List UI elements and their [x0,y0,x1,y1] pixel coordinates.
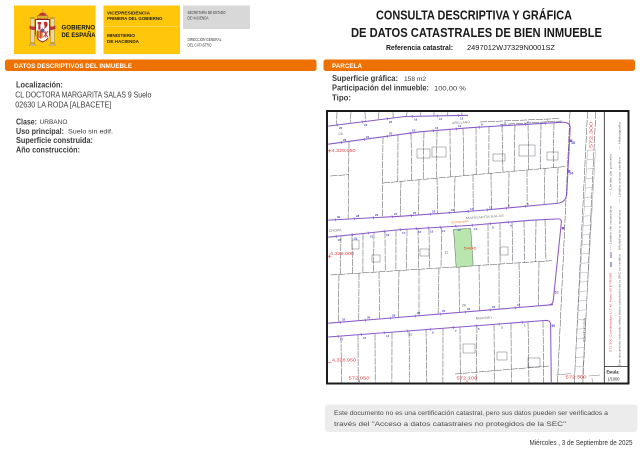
svg-text:25: 25 [338,238,342,242]
svg-text:20: 20 [339,126,343,130]
svg-text:4.328.950: 4.328.950 [332,358,357,363]
svg-text:Participación del inmueble:: Participación del inmueble: [332,84,429,93]
svg-text:28: 28 [392,313,396,317]
svg-text:— Hidrografía: — Hidrografía [617,122,621,150]
svg-text:Superficie gráfica:: Superficie gráfica: [332,74,398,83]
svg-text:14: 14 [439,117,443,121]
svg-text:50: 50 [552,324,556,328]
svg-text:17: 17 [340,338,344,342]
svg-text:Suelo sin edif.: Suelo sin edif. [68,129,113,136]
svg-text:572.100: 572.100 [457,376,479,381]
svg-text:24: 24 [366,135,370,139]
svg-text:4.329.000: 4.329.000 [330,251,355,256]
svg-text:MINISTERIO: MINISTERIO [107,33,135,39]
svg-text:32: 32 [342,317,346,321]
svg-text:30: 30 [337,215,341,219]
svg-text:2497012WJ7329N0001SZ: 2497012WJ7329N0001SZ [467,45,556,52]
svg-text:— Límite de manzana: — Límite de manzana [608,206,612,250]
svg-text:22: 22 [467,307,471,311]
svg-text:URBANO: URBANO [40,119,68,126]
svg-text:17: 17 [402,231,406,235]
svg-text:26: 26 [375,213,379,217]
svg-text:Miércoles , 3 de Septiembre de: Miércoles , 3 de Septiembre de 2025 [530,440,633,447]
svg-text:Referencia catastral:: Referencia catastral: [386,45,453,52]
svg-text:572.300 Coordenadas U.T.M. Hus: 572.300 Coordenadas U.T.M. Huso 30 ETRS8… [608,273,612,352]
svg-text:Año construcción:: Año construcción: [16,146,80,155]
svg-text:1/1000: 1/1000 [608,377,620,382]
svg-text:Tipo:: Tipo: [332,94,351,103]
svg-text:12: 12 [458,228,462,232]
svg-text:24: 24 [394,212,398,216]
svg-text:18: 18 [432,210,436,214]
svg-text:572.050: 572.050 [349,376,371,381]
svg-text:DEL CATASTRO: DEL CATASTRO [188,43,212,48]
svg-text:572.300: 572.300 [589,121,594,148]
svg-text:11: 11 [445,251,449,255]
svg-text:20: 20 [492,305,496,309]
svg-text:1/6: 1/6 [338,132,343,136]
svg-text:13: 13 [430,230,434,234]
svg-text:28: 28 [356,214,360,218]
svg-text:20: 20 [389,132,393,136]
svg-text:15: 15 [363,336,367,340]
svg-text:DE ESPAÑA: DE ESPAÑA [62,30,96,39]
svg-text:Dehesa: Dehesa [583,318,587,342]
svg-text:— Límite de parcela: — Límite de parcela [608,154,612,196]
svg-text:572.300: 572.300 [566,375,588,380]
svg-text:DE DATOS CATASTRALES DE BIEN I: DE DATOS CATASTRALES DE BIEN INMUEBLE [351,25,602,40]
svg-text:52: 52 [555,291,559,295]
svg-text:Superficie construida:: Superficie construida: [16,136,93,145]
svg-text:Este documento obtenido reflej: Este documento obtenido refleja datos ca… [617,254,621,366]
svg-text:Escala:: Escala: [607,370,620,375]
svg-text:través del "Acceso a datos cat: través del "Acceso a datos catastrales n… [334,421,566,428]
svg-text:23: 23 [354,236,358,240]
svg-text:16: 16 [435,126,439,130]
svg-text:24: 24 [442,309,446,313]
svg-text:Uso principal:: Uso principal: [16,127,64,136]
svg-text:14: 14 [470,207,474,211]
svg-text:28: 28 [343,138,347,142]
svg-text:12: 12 [489,205,493,209]
svg-text:5406: 5406 [464,246,478,251]
svg-text:DATOS DESCRIPTIVOS DEL INMUEBL: DATOS DESCRIPTIVOS DEL INMUEBLE [14,63,132,70]
svg-text:100,00 %: 100,00 % [434,86,466,93]
svg-text:Clase:: Clase: [16,117,37,126]
svg-text:13: 13 [386,334,390,338]
svg-text:PARCELA: PARCELA [332,63,362,70]
svg-text:02630 LA RODA [ALBACETE]: 02630 LA RODA [ALBACETE] [15,101,111,110]
svg-text:24: 24 [570,172,574,176]
svg-text:VICEPRESIDENCIA: VICEPRESIDENCIA [107,11,150,17]
svg-text:DIRECCIÓN GENERAL: DIRECCIÓN GENERAL [188,37,222,42]
svg-text:20: 20 [462,304,466,308]
svg-text:15: 15 [418,230,422,234]
svg-text:Este documento no es una certi: Este documento no es una certificación c… [334,410,608,417]
svg-text:16: 16 [414,118,418,122]
svg-text:21: 21 [370,235,374,239]
svg-text:158 m2: 158 m2 [404,76,427,83]
svg-text:30: 30 [367,315,371,319]
svg-text:— Límite zonas verdes: — Límite zonas verdes [617,156,621,203]
svg-text:11: 11 [409,332,412,336]
svg-text:DE HACIENDA: DE HACIENDA [107,39,139,45]
svg-text:26: 26 [417,311,421,315]
svg-text:4.329.050: 4.329.050 [332,148,357,153]
svg-text:19: 19 [386,233,390,237]
svg-text:18: 18 [412,129,416,133]
svg-text:11: 11 [442,229,445,233]
svg-text:12: 12 [458,124,462,128]
svg-text:28: 28 [572,141,576,145]
svg-text:13: 13 [474,227,478,231]
svg-text:Localización:: Localización: [16,81,63,90]
svg-text:Mobiliario y aceras: Mobiliario y aceras [617,209,621,250]
svg-text:GOBIERNO: GOBIERNO [62,25,96,32]
svg-text:22: 22 [413,211,417,215]
svg-text:22: 22 [389,120,393,124]
svg-text:16: 16 [517,303,521,307]
svg-text:24: 24 [364,123,368,127]
svg-text:DE HACIENDA: DE HACIENDA [188,15,209,20]
svg-text:16: 16 [451,208,455,212]
svg-text:PRIMERA DEL GOBIERNO: PRIMERA DEL GOBIERNO [107,16,163,22]
svg-text:CL DOCTORA MARGARITA SALAS 9 S: CL DOCTORA MARGARITA SALAS 9 Suelo [15,91,152,100]
svg-text:CONSULTA DESCRIPTIVA Y GRÁFICA: CONSULTA DESCRIPTIVA Y GRÁFICA [376,8,573,23]
